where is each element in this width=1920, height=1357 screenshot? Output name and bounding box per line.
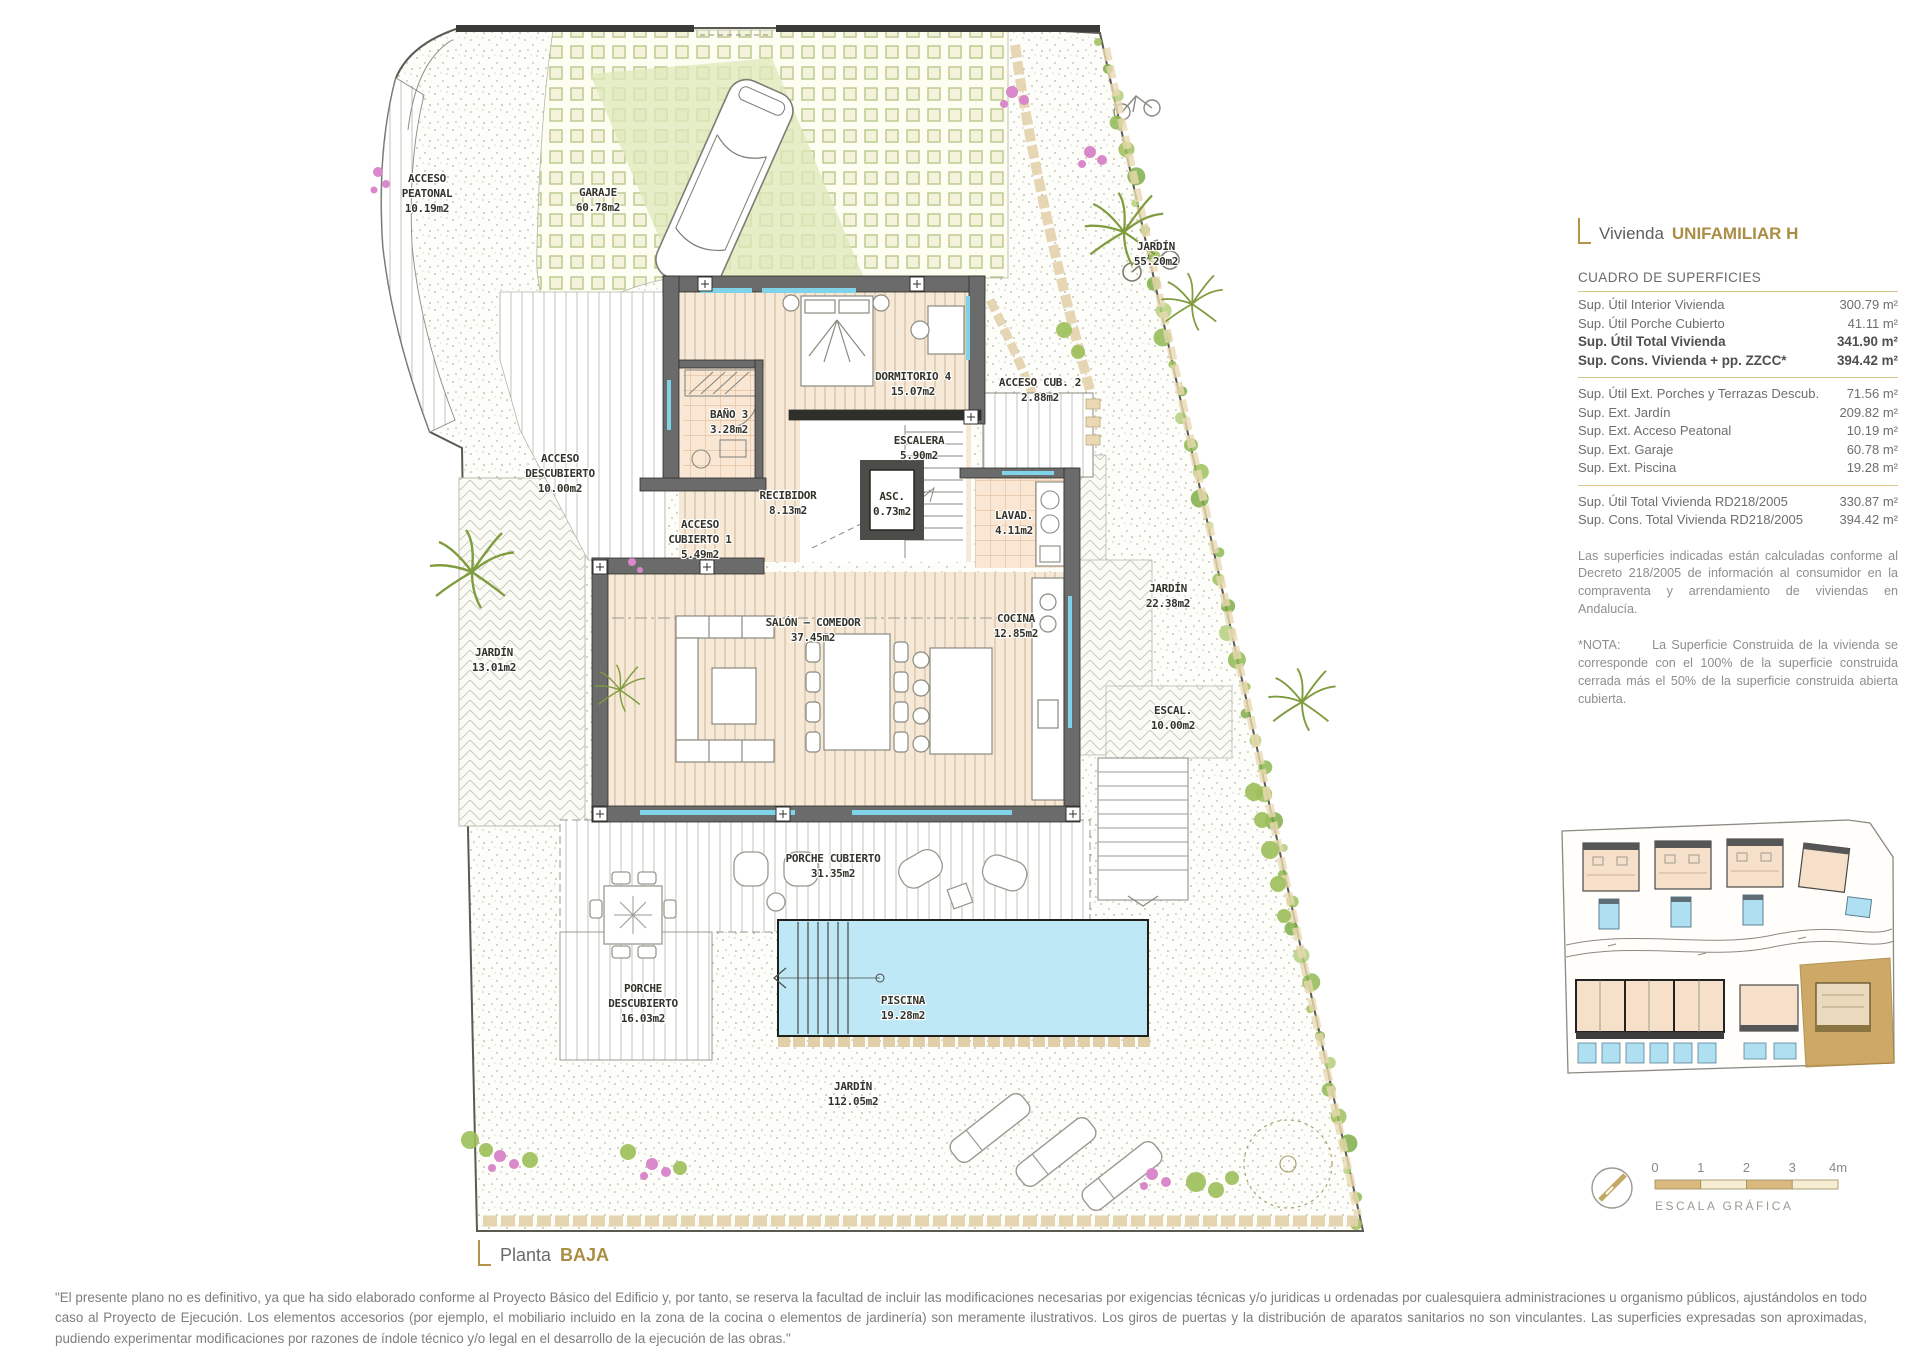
room-label-text: PORCHE CUBIERTO [786,852,882,865]
room-label-text: 22.38m2 [1146,597,1190,610]
surface-label: Sup. Útil Total Vivienda [1578,333,1726,352]
surface-label: Sup. Cons. Vivienda + pp. ZZCC* [1578,352,1786,371]
surface-label: Sup. Ext. Acceso Peatonal [1578,422,1731,441]
surface-value: 41.11 m² [1848,315,1898,334]
room-label-text: 10.00m2 [538,482,582,495]
room-label-text: 10.19m2 [405,202,449,215]
room-label-text: ESCALERA [894,434,945,447]
surface-row: Sup. Cons. Vivienda + pp. ZZCC*394.42 m² [1578,352,1898,371]
title-bracket-icon [1578,218,1591,244]
room-label-text: ACCESO [681,518,720,531]
scale-tick-label: 1 [1697,1160,1704,1175]
graphic-scale: 01234m ESCALA GRÁFICA [1592,1160,1847,1213]
surface-label: Sup. Ext. Jardín [1578,404,1671,423]
room-label-text: BAÑO 3 [710,408,748,421]
exterior-stairs [1098,758,1188,906]
surface-value: 19.28 m² [1847,459,1898,478]
surface-label: Sup. Útil Ext. Porches y Terrazas Descub… [1578,385,1819,404]
surface-value: 10.19 m² [1847,422,1898,441]
room-label-text: 2.88m2 [1021,391,1059,404]
room-label-text: GARAJE [579,186,617,199]
surface-value: 60.78 m² [1847,441,1898,460]
room-label-text: PORCHE [624,982,662,995]
scale-tick-label: 4m [1829,1160,1847,1175]
porche-descubierto-deck [560,932,712,1060]
room-label-text: 15.07m2 [891,385,935,398]
room-label-text: 16.03m2 [621,1012,665,1025]
room-label-text: PISCINA [881,994,926,1007]
surface-label: Sup. Ext. Garaje [1578,441,1673,460]
surface-row: Sup. Cons. Total Vivienda RD218/2005394.… [1578,511,1898,530]
surface-label: Sup. Útil Interior Vivienda [1578,296,1724,315]
table-separator [1578,377,1898,378]
surface-label: Sup. Útil Total Vivienda RD218/2005 [1578,493,1788,512]
room-label-text: 112.05m2 [828,1095,879,1108]
surface-table-panel: Vivienda UNIFAMILIAR H CUADRO DE SUPERFI… [1578,218,1898,721]
decree-note: Las superficies indicadas están calculad… [1578,548,1898,620]
room-label-text: DESCUBIERTO [608,997,678,1010]
scale-tick-label: 3 [1789,1160,1796,1175]
room-label-text: 37.45m2 [791,631,835,644]
key-plan-highlighted-parcel [1800,958,1894,1067]
surface-value: 71.56 m² [1847,385,1898,404]
room-label-text: 8.13m2 [769,504,807,517]
room-label-text: 55.20m2 [1134,255,1178,268]
surface-table-heading: CUADRO DE SUPERFICIES [1578,270,1898,292]
room-label-text: 10.00m2 [1151,719,1195,732]
scale-tick-label: 2 [1743,1160,1750,1175]
room-label-text: 3.28m2 [710,423,748,436]
surface-row: Sup. Útil Total Vivienda RD218/2005330.8… [1578,493,1898,512]
room-label-text: DESCUBIERTO [525,467,595,480]
room-label-text: ASC. [879,490,904,503]
surface-label: Sup. Cons. Total Vivienda RD218/2005 [1578,511,1803,530]
room-label-text: ACCESO [408,172,447,185]
scale-bar [1655,1180,1838,1189]
table-separator [1578,485,1898,486]
surface-row: Sup. Útil Porche Cubierto41.11 m² [1578,315,1898,334]
swimming-pool [774,920,1150,1042]
surface-row: Sup. Útil Total Vivienda341.90 m² [1578,333,1898,352]
room-label-text: 60.78m2 [576,201,620,214]
room-label-text: LAVAD. [995,509,1033,522]
surface-label: Sup. Útil Porche Cubierto [1578,315,1725,334]
floor-name: Planta BAJA [478,1240,609,1266]
surface-row: Sup. Ext. Jardín209.82 m² [1578,404,1898,423]
room-label-text: RECIBIDOR [760,489,818,502]
room-label-text: 5.49m2 [681,548,719,561]
room-label-text: DORMITORIO 4 [875,370,952,383]
surface-table: Sup. Útil Interior Vivienda300.79 m²Sup.… [1578,296,1898,530]
room-label-text: CUBIERTO 1 [668,533,732,546]
room-label-text: 31.35m2 [811,867,855,880]
room-label-text: 5.90m2 [900,449,938,462]
surface-row: Sup. Ext. Acceso Peatonal10.19 m² [1578,422,1898,441]
floor-prefix: Planta [500,1245,551,1266]
surface-value: 209.82 m² [1839,404,1898,423]
room-label-text: 0.73m2 [873,505,911,518]
room-label-text: JARDÍN [1149,582,1187,595]
hedge-bush [1094,38,1102,46]
surface-value: 341.90 m² [1837,333,1898,352]
scale-caption: ESCALA GRÁFICA [1655,1198,1793,1213]
room-label-text: PEATONAL [402,187,453,200]
sheet-title: Vivienda UNIFAMILIAR H [1578,218,1898,244]
room-label-text: JARDÍN [834,1080,872,1093]
room-label-text: 13.01m2 [472,661,516,674]
room-label-text: 4.11m2 [995,524,1033,537]
room-label-text: 19.28m2 [881,1009,925,1022]
legal-disclaimer: "El presente plano no es definitivo, ya … [55,1288,1867,1349]
room-label-text: JARDÍN [475,646,513,659]
floor-highlight: BAJA [560,1245,609,1266]
surface-label: Sup. Ext. Piscina [1578,459,1676,478]
room-label-text: ACCESO [541,452,580,465]
surface-value: 394.42 m² [1839,511,1898,530]
room-label-text: ACCESO CUB. 2 [999,376,1081,389]
key-plan-map [1562,820,1894,1073]
surface-row: Sup. Ext. Garaje60.78 m² [1578,441,1898,460]
room-label-text: ESCAL. [1154,704,1192,717]
room-label-text: COCINA [997,612,1036,625]
label-acceso-peatonal: ACCESOPEATONAL10.19m2 [402,172,453,215]
surface-value: 300.79 m² [1839,296,1898,315]
surface-value: 394.42 m² [1837,352,1898,371]
laundry-fixtures [1036,482,1064,566]
title-highlight: UNIFAMILIAR H [1672,224,1799,244]
title-prefix: Vivienda [1599,224,1664,244]
room-label-text: 12.85m2 [994,627,1038,640]
surface-row: Sup. Ext. Piscina19.28 m² [1578,459,1898,478]
scale-tick-label: 0 [1651,1160,1658,1175]
floor-bracket-icon [478,1240,491,1266]
room-label-text: JARDÍN [1137,240,1175,253]
plan-sheet: ACCESOPEATONAL10.19m2 GARAJE60.78m2 JARD… [0,0,1920,1357]
construction-note: *NOTA: La Superficie Construida de la vi… [1578,637,1898,709]
surface-value: 330.87 m² [1839,493,1898,512]
surface-row: Sup. Útil Ext. Porches y Terrazas Descub… [1578,385,1898,404]
surface-row: Sup. Útil Interior Vivienda300.79 m² [1578,296,1898,315]
scale-ticks: 01234m [1651,1160,1847,1175]
room-label-text: SALÓN – COMEDOR [766,616,862,629]
acceso-cub-2-deck [983,393,1100,477]
